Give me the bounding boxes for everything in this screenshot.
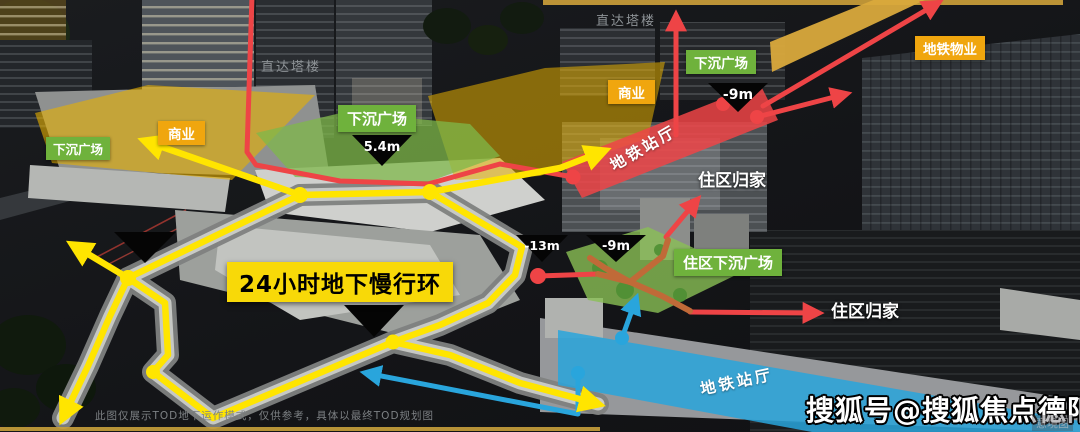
- tod-diagram: 5.4m -13m -9m -9m 直达塔楼 直达塔楼 下沉广场 下沉广场 下沉…: [0, 0, 1080, 432]
- triangle-level-5-4m-text: 5.4m: [364, 140, 401, 155]
- label-24h-underground-loop: 24小时地下慢行环: [227, 262, 453, 302]
- label-home-upper: 住区归家: [698, 172, 766, 192]
- triangle-level-minus9-mid-text: -9m: [602, 239, 630, 254]
- scene-render: 5.4m -13m -9m -9m: [0, 0, 1080, 432]
- triangle-level-minus13-text: -13m: [524, 238, 560, 253]
- label-sunken-plaza-center: 下沉广场: [338, 105, 416, 132]
- disclaimer-text: 此图仅展示TOD地下运作模式，仅供参考，具体以最终TOD规划图: [95, 408, 434, 423]
- label-sunken-plaza-right: 下沉广场: [686, 50, 756, 74]
- label-residential-sunken-plaza: 住区下沉广场: [674, 249, 782, 276]
- triangle-level-minus9-top-text: -9m: [723, 87, 753, 103]
- label-commercial-right: 商业: [608, 80, 655, 104]
- label-direct-tower-left: 直达塔楼: [261, 61, 321, 76]
- corner-mark-text: 意境图: [1032, 415, 1073, 431]
- label-metro-property: 地铁物业: [915, 36, 985, 60]
- label-commercial-left: 商业: [158, 121, 205, 145]
- label-sunken-plaza-left: 下沉广场: [46, 137, 110, 160]
- label-home-lower: 住区归家: [831, 303, 899, 323]
- label-direct-tower-right: 直达塔楼: [596, 15, 656, 30]
